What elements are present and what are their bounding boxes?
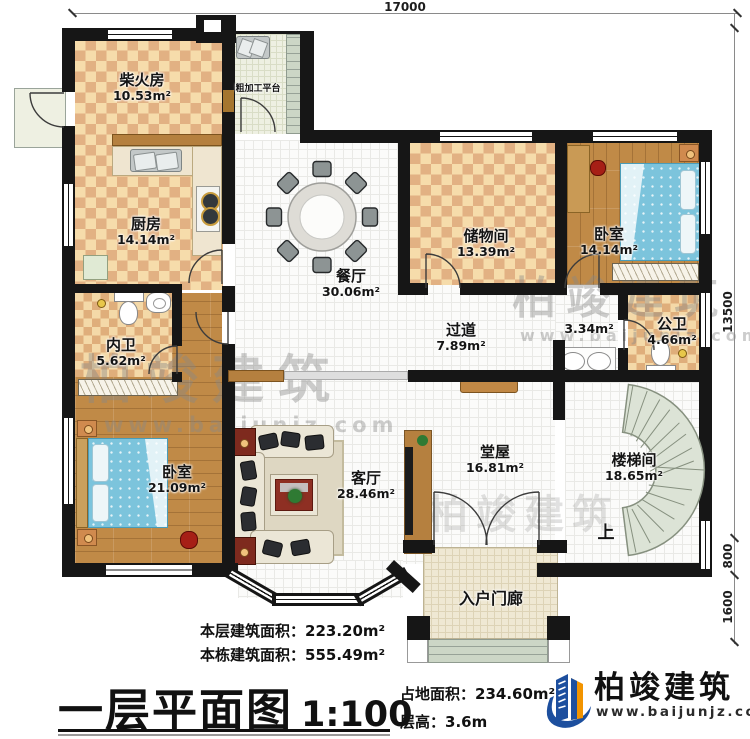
kitchen-divider-counter — [112, 134, 222, 146]
title-underline-2 — [58, 734, 390, 736]
label-bedroom-right: 卧室 14.14m² — [549, 226, 669, 257]
plant-small — [417, 435, 428, 446]
title-underline — [58, 729, 390, 732]
wall — [555, 130, 567, 295]
window — [62, 184, 75, 246]
pillow — [680, 170, 696, 210]
storage-floor — [410, 143, 555, 285]
wall — [537, 563, 712, 577]
window — [106, 563, 192, 577]
brand-logo-icon — [542, 672, 592, 732]
wall — [553, 382, 565, 420]
stool-red — [180, 531, 198, 549]
half-wall-dining — [228, 370, 284, 382]
bed-left-headboard — [76, 438, 88, 528]
land-area-line: 占地面积：234.60m² — [400, 683, 555, 704]
floor-plan-canvas: 柏竣建筑 www.baijunjz.com 柏竣建筑 www.baijunjz.… — [0, 0, 750, 739]
wall — [222, 286, 235, 312]
desk-right — [567, 145, 590, 213]
wall — [172, 372, 182, 382]
floor-height-line: 层高：3.6m — [400, 711, 487, 732]
drain-public — [678, 349, 687, 358]
label-processing-platform: 粗加工平台 — [226, 84, 290, 94]
label-dining: 餐厅 30.06m² — [291, 268, 411, 299]
brand-url: www.baijunjz.com — [596, 704, 750, 720]
dim-right-main: 13500 — [721, 288, 735, 336]
wall — [600, 283, 712, 295]
brand-logo: 柏竣建筑 www.baijunjz.com — [540, 660, 748, 735]
dim-top: 17000 — [72, 0, 738, 14]
pillow — [680, 214, 696, 254]
toilet-private — [114, 291, 142, 325]
drain-private — [97, 299, 106, 308]
wall — [460, 283, 560, 295]
window — [593, 130, 677, 143]
sofa-chaise — [250, 530, 334, 564]
nightstand-left-1 — [77, 420, 97, 437]
window — [440, 130, 532, 143]
floor-transition — [284, 371, 408, 380]
label-kitchen: 厨房 14.14m² — [86, 216, 206, 247]
brand-name: 柏竣建筑 — [594, 662, 734, 707]
window — [62, 418, 75, 504]
kitchen-sink — [130, 149, 182, 172]
nightstand-right-1 — [679, 144, 699, 162]
dim-right-low: 1600 — [721, 581, 735, 633]
wall — [300, 31, 314, 135]
label-storage: 储物间 13.39m² — [426, 228, 546, 259]
label-porch: 入户门廊 — [430, 590, 552, 608]
wall — [62, 28, 75, 92]
label-living-room: 客厅 28.46m² — [306, 470, 426, 501]
pillow — [92, 444, 109, 482]
porch-column-right — [547, 616, 570, 640]
plant — [288, 489, 302, 503]
label-hall: 堂屋 16.81m² — [435, 444, 555, 475]
closet-left — [78, 379, 178, 396]
outside-platform — [14, 88, 66, 148]
porch-column-left — [407, 616, 430, 640]
label-stair-up: 上 — [590, 524, 622, 543]
chimney-flue — [204, 20, 221, 32]
label-washstand: 3.34m² — [549, 322, 629, 336]
label-stairwell: 楼梯间 18.65m² — [574, 452, 694, 483]
wall — [222, 28, 235, 244]
label-corridor: 过道 7.89m² — [401, 322, 521, 353]
porch-steps — [428, 639, 548, 663]
label-firewood-room: 柴火房 10.53m² — [82, 72, 202, 103]
wall — [75, 284, 177, 293]
wall — [537, 540, 567, 553]
porch-step-side-left — [407, 639, 428, 663]
dim-right-mid: 800 — [721, 534, 735, 578]
label-bedroom-left: 卧室 21.09m² — [117, 464, 237, 495]
chair-red — [590, 160, 606, 176]
wall — [408, 370, 712, 382]
pillow — [92, 484, 109, 522]
fridge — [83, 255, 108, 280]
wall — [403, 540, 435, 553]
window — [108, 28, 172, 41]
label-public-bath: 公卫 4.66m² — [622, 316, 722, 347]
bay-wall-mid — [272, 593, 364, 606]
platform-sink — [236, 36, 270, 59]
wall — [172, 284, 182, 346]
floor-area-line: 本层建筑面积：223.20m² — [200, 620, 385, 641]
closet-right — [612, 263, 699, 281]
building-area-line: 本栋建筑面积：555.49m² — [200, 644, 385, 665]
window — [699, 162, 712, 234]
label-private-bath: 内卫 5.62m² — [71, 337, 171, 368]
sink-private — [146, 292, 171, 313]
window — [699, 521, 712, 569]
nightstand-left-2 — [77, 529, 97, 546]
